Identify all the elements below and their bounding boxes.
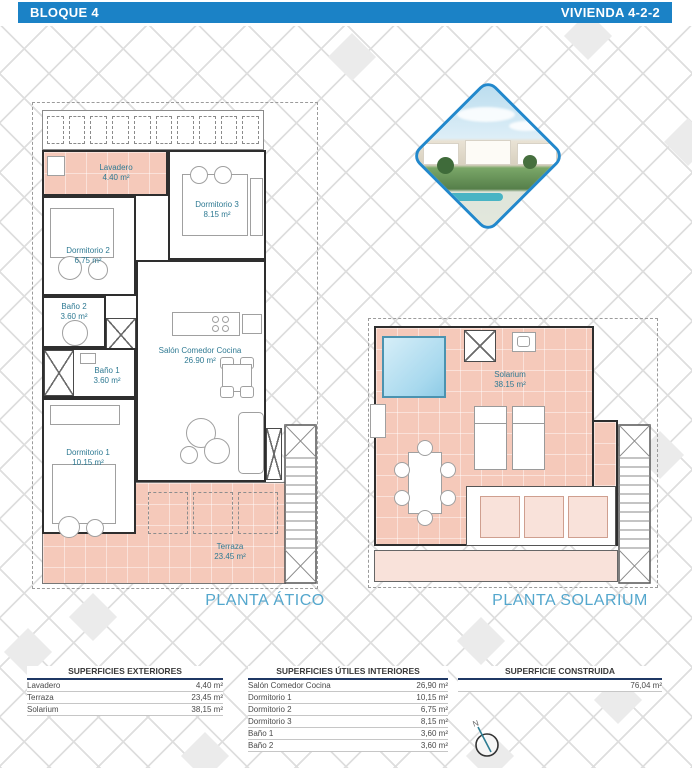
room-label-solarium: Solarium 38.15 m² [455, 370, 565, 390]
room-label-terraza: Terraza 23.45 m² [160, 542, 300, 562]
table-superficies-exteriores: SUPERFICIES EXTERIORES Lavadero 4,40 m² … [27, 666, 223, 716]
room-label-salon: Salón Comedor Cocina 26.90 m² [138, 346, 262, 366]
terrace-awning-panel [193, 492, 233, 534]
table-superficie-construida: SUPERFICIE CONSTRUIDA 76,04 m² [458, 666, 662, 692]
room-label-lavadero: Lavadero 4.40 m² [66, 163, 166, 183]
hallway [106, 296, 136, 320]
chair [440, 490, 456, 506]
compass-north-label: N [472, 718, 480, 728]
room-label-bano1: Baño 1 3.60 m² [80, 366, 134, 386]
plant [180, 446, 198, 464]
north-compass: N [463, 716, 509, 764]
sink [80, 353, 96, 364]
chair [394, 462, 410, 478]
kitchen-counter [172, 312, 240, 336]
sink-basin [517, 336, 530, 347]
shower-icon [44, 350, 74, 396]
lower-terrace-panel [568, 496, 608, 538]
room-label-dormitorio2: Dormitorio 2 6.75 m² [44, 246, 132, 266]
table-row: Baño 2 3,60 m² [248, 740, 448, 752]
pillow [58, 516, 80, 538]
solarium-plan-title: PLANTA SOLARIUM [470, 592, 670, 610]
room-label-dormitorio3: Dormitorio 3 8.15 m² [172, 200, 262, 220]
pillow [86, 519, 104, 537]
room-label-dormitorio1: Dormitorio 1 10.15 m² [44, 448, 132, 468]
wardrobe [50, 405, 120, 425]
atico-plan-title: PLANTA ÁTICO [165, 592, 365, 610]
cloud-shape [457, 107, 515, 122]
table-row: 76,04 m² [458, 680, 662, 692]
table-row: Baño 1 3,60 m² [248, 728, 448, 740]
room-label-bano2: Baño 2 3.60 m² [42, 302, 106, 322]
building-shape [465, 140, 511, 165]
unit-title: VIVIENDA 4-2-2 [561, 5, 660, 20]
plan-sheet: BLOQUE 4 VIVIENDA 4-2-2 Terraza 23.45 m² [0, 0, 692, 768]
dining-chair [220, 386, 234, 398]
room-salon [136, 260, 266, 482]
table-title: SUPERFICIES ÚTILES INTERIORES [248, 666, 448, 680]
ac-unit [370, 404, 386, 438]
table-row: Dormitorio 3 8,15 m² [248, 716, 448, 728]
chair [394, 490, 410, 506]
table-row: Solarium 38,15 m² [27, 704, 223, 716]
dining-chair [240, 386, 254, 398]
table-title: SUPERFICIE CONSTRUIDA [458, 666, 662, 680]
kitchen-sink [242, 314, 262, 334]
chair [417, 510, 433, 526]
hob-burner [212, 316, 219, 323]
solarium-bottom-strip [374, 550, 618, 582]
table-row: Lavadero 4,40 m² [27, 680, 223, 692]
hob-burner [222, 316, 229, 323]
armchair [204, 438, 230, 464]
table-title: SUPERFICIES EXTERIORES [27, 666, 223, 680]
bed [52, 464, 116, 524]
header-bar: BLOQUE 4 VIVIENDA 4-2-2 [18, 2, 672, 23]
table-superficies-interiores: SUPERFICIES ÚTILES INTERIORES Salón Come… [248, 666, 448, 752]
terrace-awning-panel [238, 492, 278, 534]
pillow [214, 166, 232, 184]
plunge-pool [382, 336, 446, 398]
sun-lounger [474, 406, 507, 470]
skylight-icon [464, 330, 496, 362]
lower-terrace-panel [480, 496, 520, 538]
hallway [136, 196, 170, 262]
shower-icon [106, 318, 136, 352]
outdoor-sink [512, 332, 536, 352]
hob-burner [222, 325, 229, 332]
sofa [238, 412, 264, 474]
block-title: BLOQUE 4 [30, 5, 99, 20]
table-row: Dormitorio 2 6,75 m² [248, 704, 448, 716]
shower-tray [62, 320, 88, 346]
palm-tree-shape [523, 155, 537, 169]
outdoor-table [408, 452, 442, 514]
sun-lounger [512, 406, 545, 470]
pergola-strip [42, 110, 264, 150]
lower-terrace-panel [524, 496, 564, 538]
stair-column-icon [266, 428, 282, 480]
table-row: Salón Comedor Cocina 26,90 m² [248, 680, 448, 692]
washer-fixture [47, 156, 65, 176]
stairs-solarium [618, 424, 651, 584]
chair [440, 462, 456, 478]
table-row: Terraza 23,45 m² [27, 692, 223, 704]
table-row: Dormitorio 1 10,15 m² [248, 692, 448, 704]
pillow [190, 166, 208, 184]
chair [417, 440, 433, 456]
palm-tree-shape [437, 157, 454, 174]
hob-burner [212, 325, 219, 332]
terrace-awning-panel [148, 492, 188, 534]
